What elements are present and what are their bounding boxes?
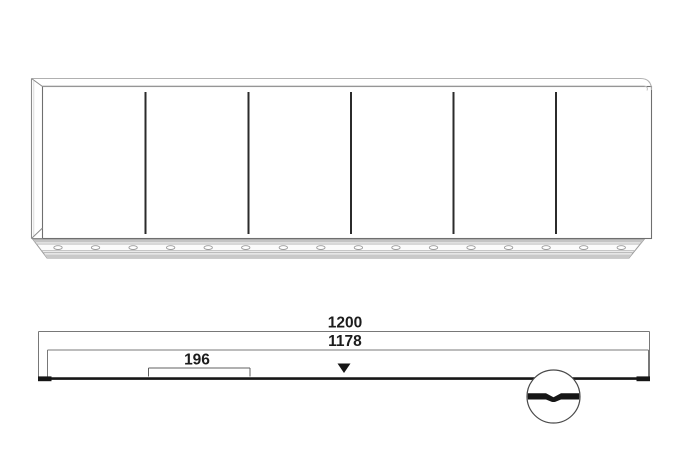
panel-left-edge — [32, 79, 43, 239]
plinth-slot — [429, 246, 437, 250]
plinth-slot — [317, 246, 325, 250]
plinth-slot — [279, 246, 287, 250]
plinth-slot — [91, 246, 99, 250]
plinth-slot — [129, 246, 137, 250]
plinth-slot — [204, 246, 212, 250]
plinth-rail — [33, 240, 644, 259]
dimension-offset: 196 — [149, 352, 251, 377]
panel-body — [43, 87, 652, 239]
plinth-slot — [580, 246, 588, 250]
dim-label-196: 196 — [184, 352, 210, 369]
center-triangle-marker-icon — [338, 364, 351, 374]
plinth-slot — [166, 246, 174, 250]
dim-label-1200: 1200 — [328, 315, 362, 332]
cabinet-front-elevation — [32, 79, 652, 259]
plinth-slot — [542, 246, 550, 250]
plinth-slot — [504, 246, 512, 250]
plinth-slot — [54, 246, 62, 250]
technical-drawing-canvas: 1200 1178 196 — [0, 0, 687, 470]
dim-label-1178: 1178 — [328, 333, 362, 350]
plinth-top-band — [33, 240, 644, 243]
bar-right-endcap — [637, 376, 651, 381]
left-edge-top-miter-line — [32, 79, 43, 87]
plinth-bottom-band — [33, 254, 644, 258]
bar-left-endcap — [38, 376, 52, 381]
plinth-slot — [354, 246, 362, 250]
left-edge-bottom-miter-line — [32, 228, 43, 239]
drawing-svg: 1200 1178 196 — [0, 0, 687, 470]
plinth-slot — [242, 246, 250, 250]
plinth-slot — [617, 246, 625, 250]
plinth-slot — [467, 246, 475, 250]
plinth-slot — [392, 246, 400, 250]
dimension-view: 1200 1178 196 — [38, 315, 650, 424]
